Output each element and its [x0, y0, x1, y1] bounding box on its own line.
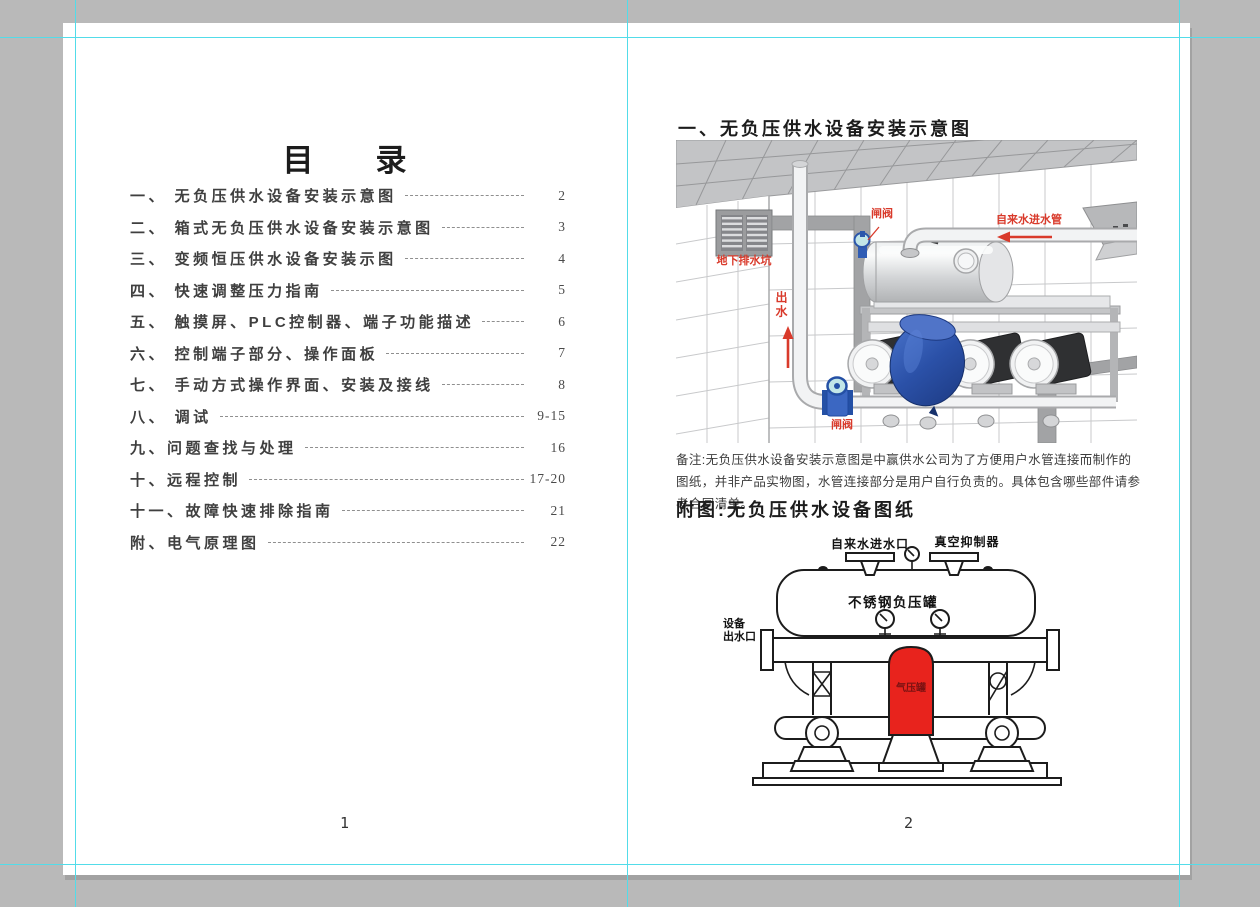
toc-entry-label: 六、 控制端子部分、操作面板 [130, 343, 378, 364]
label-tap-water-inlet-pipe: 自来水进水管 [976, 214, 1082, 226]
toc-leader-line [405, 195, 524, 196]
toc-entry-label: 附、电气原理图 [130, 532, 260, 553]
negative-pressure-tank [863, 234, 1013, 302]
installation-3d-diagram: 闸阀 自来水进水管 地下排水坑 出水 闸阀 [676, 140, 1137, 443]
label-equipment-outlet: 设备 出水口 [723, 618, 756, 644]
toc-leader-line [386, 353, 524, 354]
label-gate-valve-top: 闸阀 [858, 208, 906, 220]
section-title: 一、无负压供水设备安装示意图 [678, 115, 972, 141]
toc-title: 目 录 [63, 135, 626, 180]
drawn-vacuum-suppressor [930, 553, 978, 575]
toc-leader-line [305, 447, 524, 448]
toc-list: 一、 无负压供水设备安装示意图 2 二、 箱式无负压供水设备安装示意图 3 三、… [130, 180, 566, 558]
toc-entry: 四、 快速调整压力指南 5 [130, 275, 566, 307]
toc-entry-label: 一、 无负压供水设备安装示意图 [130, 185, 397, 206]
toc-entry-label: 二、 箱式无负压供水设备安装示意图 [130, 217, 434, 238]
page-2-diagram: 一、无负压供水设备安装示意图 [627, 23, 1190, 875]
toc-entry: 七、 手动方式操作界面、安装及接线 8 [130, 369, 566, 401]
equipment-drawing-art [715, 535, 1105, 801]
floor-drain-grate [716, 210, 772, 256]
toc-entry-page: 8 [530, 377, 566, 393]
toc-entry-label: 七、 手动方式操作界面、安装及接线 [130, 374, 434, 395]
toc-leader-line [405, 258, 524, 259]
toc-entry-label: 八、 调试 [130, 406, 212, 427]
label-air-tank: 气压罐 [885, 679, 937, 694]
toc-entry-page: 4 [530, 251, 566, 267]
design-canvas: 目 录 一、 无负压供水设备安装示意图 2 二、 箱式无负压供水设备安装示意图 … [0, 0, 1260, 907]
toc-entry: 八、 调试 9-15 [130, 401, 566, 433]
toc-entry: 三、 变频恒压供水设备安装示图 4 [130, 243, 566, 275]
drawn-left-valve [813, 662, 831, 715]
label-vacuum-suppressor: 真空抑制器 [897, 533, 1037, 550]
toc-entry: 一、 无负压供水设备安装示意图 2 [130, 180, 566, 212]
toc-entry: 十一、故障快速排除指南 21 [130, 495, 566, 527]
toc-entry-page: 16 [530, 440, 566, 456]
toc-entry-page: 17-20 [530, 471, 567, 487]
drawn-pressure-gauges [876, 610, 949, 638]
equipment-line-drawing: 自来水进水口 真空抑制器 不锈钢负压罐 设备 出水口 气压罐 [715, 535, 1105, 801]
toc-entry: 二、 箱式无负压供水设备安装示意图 3 [130, 212, 566, 244]
toc-leader-line [442, 384, 524, 385]
installation-3d-art [676, 140, 1137, 443]
page-1-toc: 目 录 一、 无负压供水设备安装示意图 2 二、 箱式无负压供水设备安装示意图 … [63, 23, 626, 875]
drawn-air-tank [879, 647, 943, 771]
guide-vertical-spine[interactable] [627, 0, 628, 907]
label-equipment-outlet-line2: 出水口 [723, 631, 756, 644]
toc-entry-page: 21 [530, 503, 566, 519]
toc-entry: 附、电气原理图 22 [130, 527, 566, 559]
toc-entry: 五、 触摸屏、PLC控制器、端子功能描述 6 [130, 306, 566, 338]
toc-entry-page: 2 [530, 188, 566, 204]
toc-leader-line [220, 416, 524, 417]
guide-vertical-right[interactable] [1179, 0, 1180, 907]
toc-entry-page: 9-15 [530, 408, 566, 424]
page-number: 1 [63, 814, 626, 832]
toc-entry: 六、 控制端子部分、操作面板 7 [130, 338, 566, 370]
toc-entry-page: 7 [530, 345, 566, 361]
drawn-right-valve [989, 662, 1007, 715]
toc-entry: 十、远程控制 17-20 [130, 464, 566, 496]
guide-horizontal-top[interactable] [0, 37, 1260, 38]
attachment-title: 附图:无负压供水设备图纸 [676, 496, 916, 522]
toc-entry-page: 22 [530, 534, 566, 550]
page-number: 2 [627, 814, 1190, 832]
toc-leader-line [442, 227, 524, 228]
toc-entry-label: 五、 触摸屏、PLC控制器、端子功能描述 [130, 311, 474, 332]
label-underground-drain-pit: 地下排水坑 [707, 255, 781, 267]
toc-entry-label: 十一、故障快速排除指南 [130, 500, 334, 521]
guide-vertical-left[interactable] [75, 0, 76, 907]
toc-entry-page: 5 [530, 282, 566, 298]
toc-leader-line [342, 510, 524, 511]
toc-entry-page: 3 [530, 219, 566, 235]
toc-leader-line [249, 479, 523, 480]
toc-entry-label: 九、问题查找与处理 [130, 437, 297, 458]
toc-entry-page: 6 [530, 314, 566, 330]
label-gate-valve-bottom: 闸阀 [818, 419, 866, 431]
toc-entry-label: 十、远程控制 [130, 469, 241, 490]
label-equipment-outlet-line1: 设备 [723, 618, 756, 631]
label-water-outlet: 出水 [775, 291, 787, 319]
toc-entry-label: 四、 快速调整压力指南 [130, 280, 323, 301]
toc-entry-label: 三、 变频恒压供水设备安装示图 [130, 248, 397, 269]
toc-entry: 九、问题查找与处理 16 [130, 432, 566, 464]
toc-leader-line [268, 542, 524, 543]
drawn-inlet-nozzle [846, 553, 894, 575]
label-stainless-tank: 不锈钢负压罐 [823, 591, 963, 611]
toc-leader-line [331, 290, 524, 291]
toc-leader-line [482, 321, 524, 322]
guide-horizontal-bottom[interactable] [0, 864, 1260, 865]
